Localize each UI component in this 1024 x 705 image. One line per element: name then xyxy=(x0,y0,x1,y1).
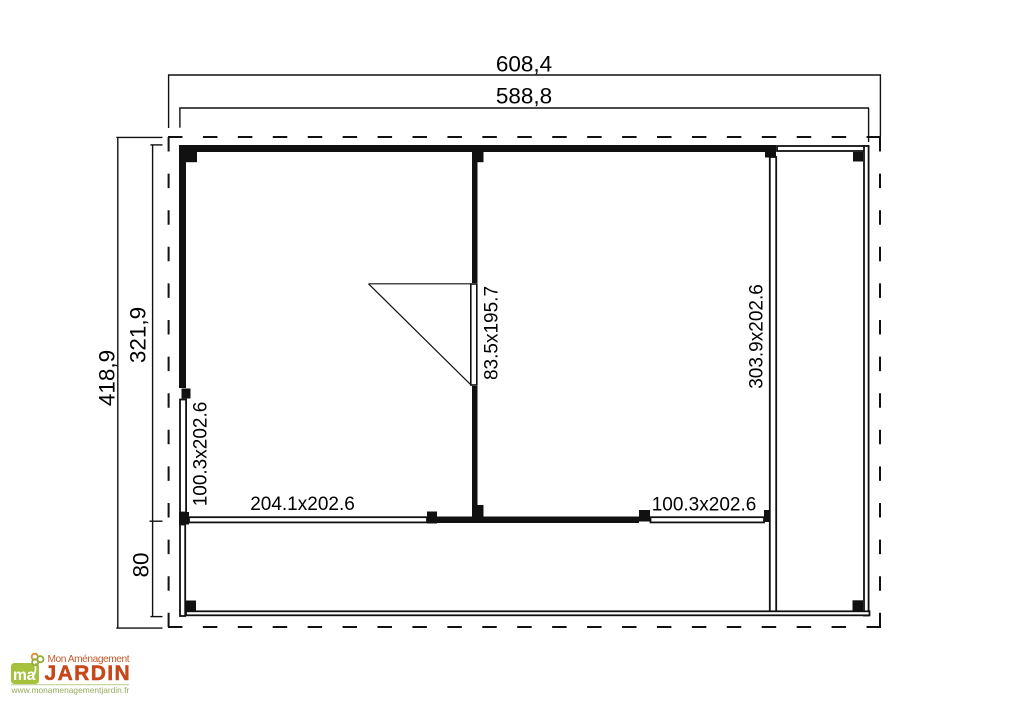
svg-text:www.monamenagementjardin.fr: www.monamenagementjardin.fr xyxy=(11,685,130,695)
svg-text:303.9x202.6: 303.9x202.6 xyxy=(747,284,768,389)
svg-text:80: 80 xyxy=(129,552,154,577)
svg-text:588,8: 588,8 xyxy=(496,84,552,109)
svg-text:100.3x202.6: 100.3x202.6 xyxy=(191,402,212,507)
svg-text:204.1x202.6: 204.1x202.6 xyxy=(250,494,355,515)
svg-text:ma: ma xyxy=(13,667,36,684)
svg-text:100.3x202.6: 100.3x202.6 xyxy=(652,495,757,516)
svg-text:418,9: 418,9 xyxy=(95,350,120,406)
svg-text:83.5x195.7: 83.5x195.7 xyxy=(482,286,503,380)
svg-text:608,4: 608,4 xyxy=(496,52,552,77)
svg-text:JARDIN: JARDIN xyxy=(45,662,132,685)
svg-text:321,9: 321,9 xyxy=(126,307,151,363)
